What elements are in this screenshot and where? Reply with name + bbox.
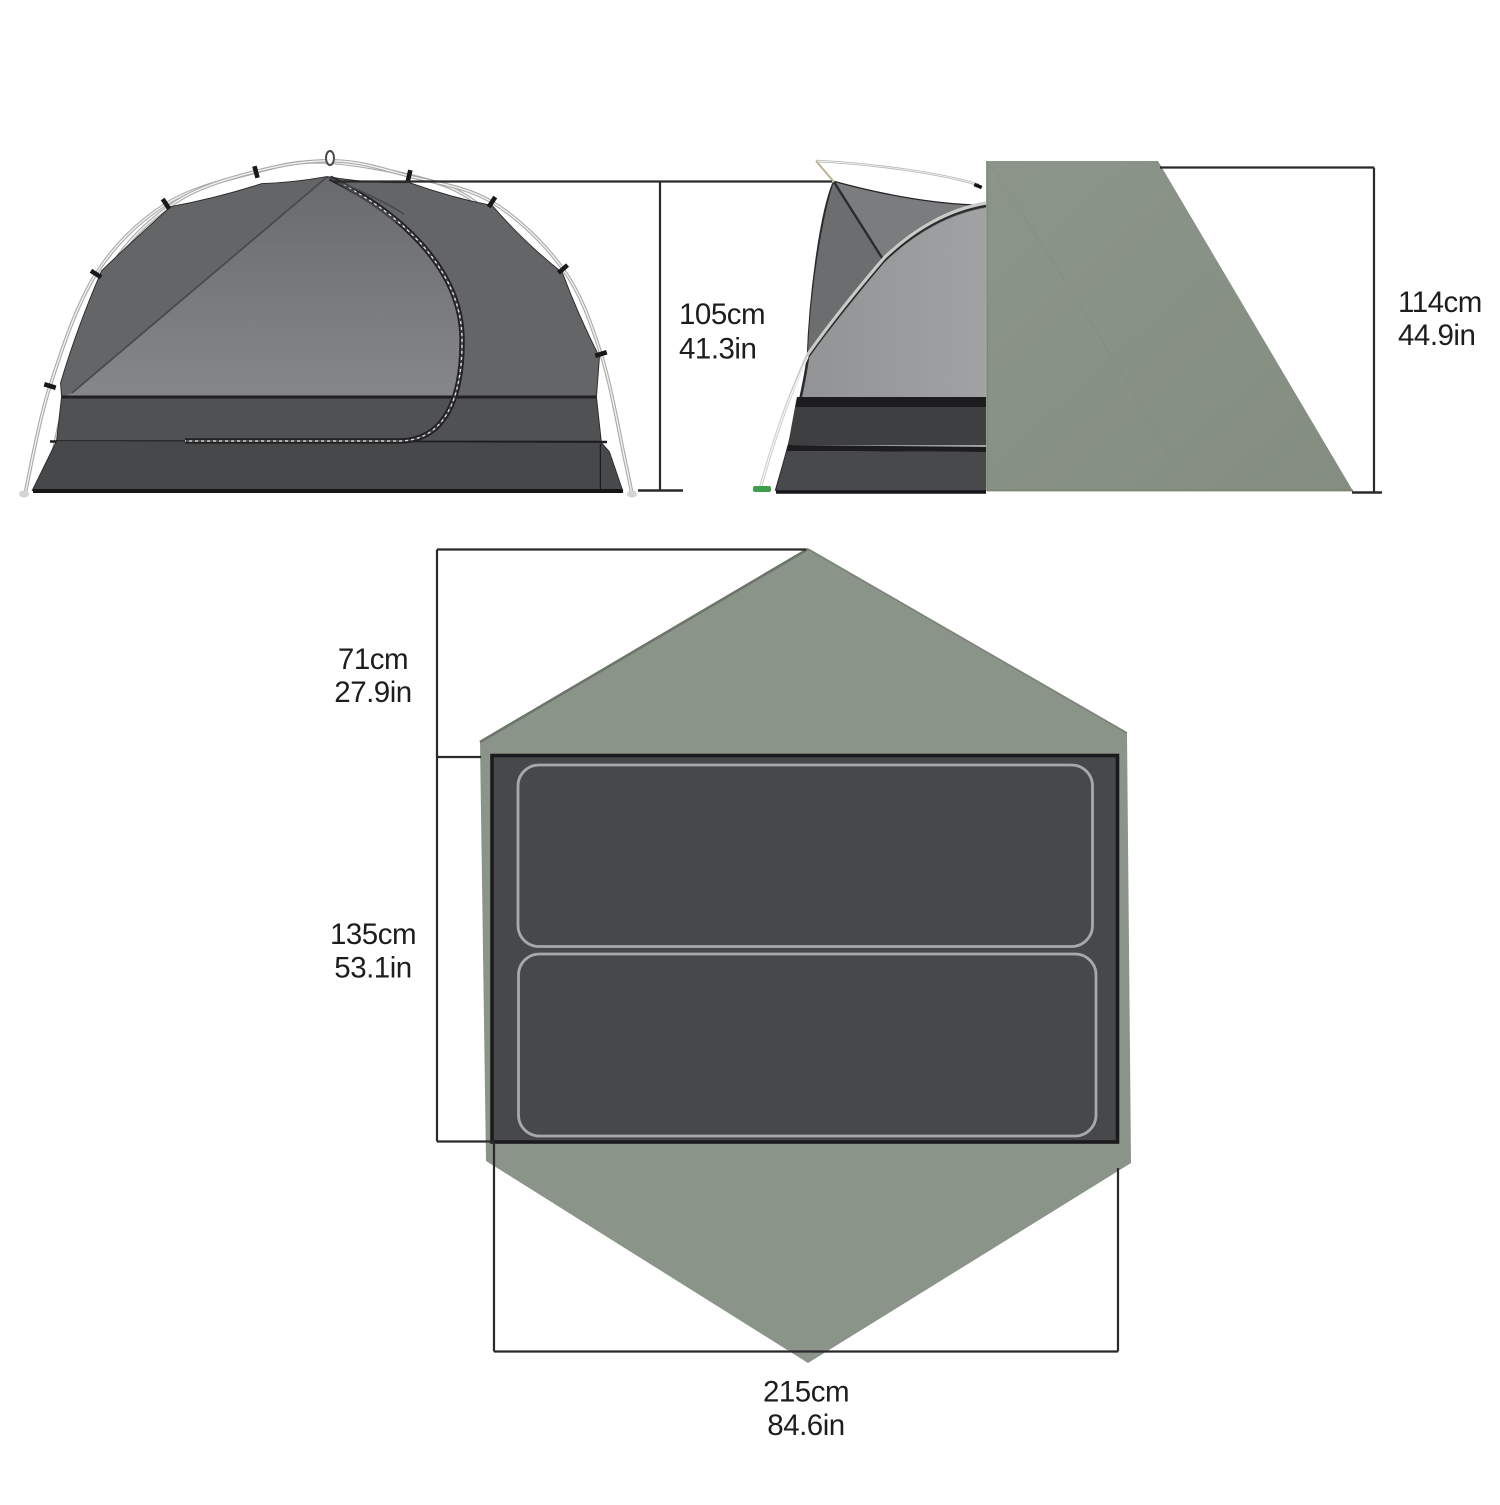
svg-text:114cm: 114cm <box>1398 286 1482 319</box>
svg-text:27.9in: 27.9in <box>334 676 411 709</box>
svg-text:105cm: 105cm <box>679 298 765 331</box>
svg-text:44.9in: 44.9in <box>1398 319 1475 352</box>
svg-text:215cm: 215cm <box>763 1376 849 1409</box>
svg-text:53.1in: 53.1in <box>334 952 411 985</box>
svg-text:135cm: 135cm <box>330 918 416 951</box>
svg-text:71cm: 71cm <box>338 643 408 676</box>
svg-text:41.3in: 41.3in <box>679 333 756 366</box>
svg-text:84.6in: 84.6in <box>767 1409 844 1442</box>
